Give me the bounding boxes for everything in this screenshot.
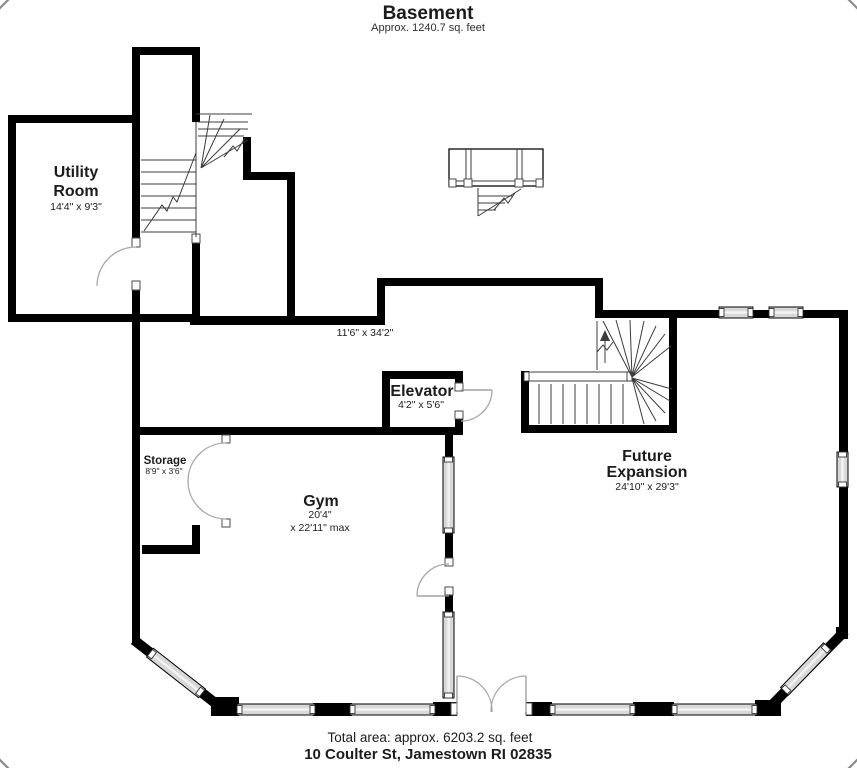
utility-room-door	[97, 247, 136, 286]
future-expansion-dims: 24'10" x 29'3"	[615, 481, 679, 493]
elevator-dims: 4'2" x 5'6"	[398, 399, 444, 411]
stairs-main	[524, 320, 672, 424]
gym-dims1: 20'4"	[308, 509, 332, 521]
window	[781, 643, 832, 695]
window	[147, 648, 206, 697]
floor-plan-page: Basement Approx. 1240.7 sq. feet Utility…	[0, 0, 857, 768]
window	[769, 307, 803, 318]
floor-plan: Basement Approx. 1240.7 sq. feet Utility…	[0, 0, 857, 768]
window	[350, 704, 435, 715]
bottom-double-doors	[457, 676, 526, 712]
window	[237, 704, 315, 715]
page-subtitle: Approx. 1240.7 sq. feet	[371, 22, 485, 34]
window	[719, 307, 753, 318]
future-expansion-label: Future	[622, 448, 672, 465]
elevator-door	[461, 390, 492, 421]
utility-room-label2: Room	[53, 183, 98, 200]
storage-double-doors	[188, 443, 226, 519]
total-area-text: Total area: approx. 6203.2 sq. feet	[328, 730, 533, 745]
utility-room-dims: 14'4" x 9'3"	[50, 201, 102, 213]
stairs-upper-left	[141, 114, 252, 237]
window	[837, 452, 848, 487]
bulkhead-window-and-steps	[449, 149, 543, 216]
storage-dims: 8'9" x 3'6"	[145, 466, 182, 476]
window	[550, 704, 635, 715]
gym-dims2: x 22'11" max	[290, 522, 350, 534]
page-title: Basement	[383, 3, 474, 24]
hall-dims: 11'6" x 34'2"	[337, 327, 394, 339]
window	[443, 612, 454, 698]
window	[443, 457, 454, 533]
window	[672, 704, 757, 715]
gym-east-door	[417, 564, 449, 596]
address-text: 10 Coulter St, Jamestown RI 02835	[304, 746, 552, 763]
utility-room-label: Utility	[54, 164, 99, 181]
elevator-label: Elevator	[390, 383, 453, 400]
future-expansion-label2: Expansion	[607, 464, 688, 481]
walls	[8, 47, 848, 716]
gym-label: Gym	[303, 493, 339, 510]
